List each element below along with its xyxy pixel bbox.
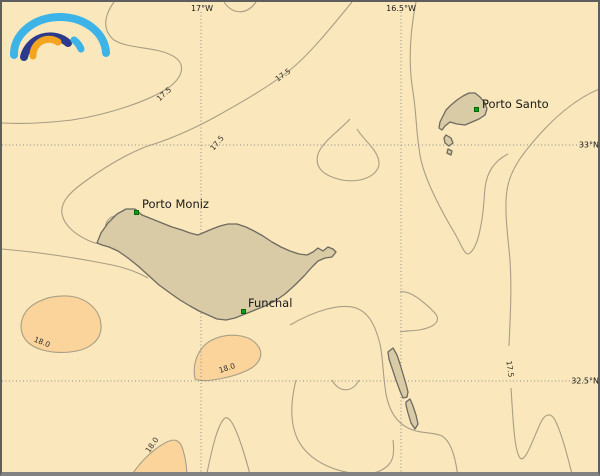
label-layer: 17°W16.5°W33°N32.5°N17.517.517.517.518.0… [2,2,598,472]
graticule-label: 32.5°N [571,377,599,386]
place-label: Funchal [248,296,292,310]
isotherm-value-label: 18.0 [33,335,52,350]
isotherm-value-label: 17.5 [504,360,515,378]
map-canvas: 17°W16.5°W33°N32.5°N17.517.517.517.518.0… [0,0,600,476]
graticule-label: 17°W [191,4,213,13]
isotherm-value-label: 18.0 [218,361,237,375]
place-marker [134,210,139,215]
graticule-label: 16.5°W [386,4,416,13]
place-marker [474,107,479,112]
graticule-label: 33°N [579,141,599,150]
place-label: Porto Moniz [142,197,209,211]
isotherm-value-label: 18.0 [144,436,161,455]
place-label: Porto Santo [482,97,549,111]
isotherm-value-label: 17.5 [208,134,226,153]
isotherm-value-label: 17.5 [155,85,173,103]
isotherm-value-label: 17.5 [274,67,293,84]
place-marker [241,309,246,314]
